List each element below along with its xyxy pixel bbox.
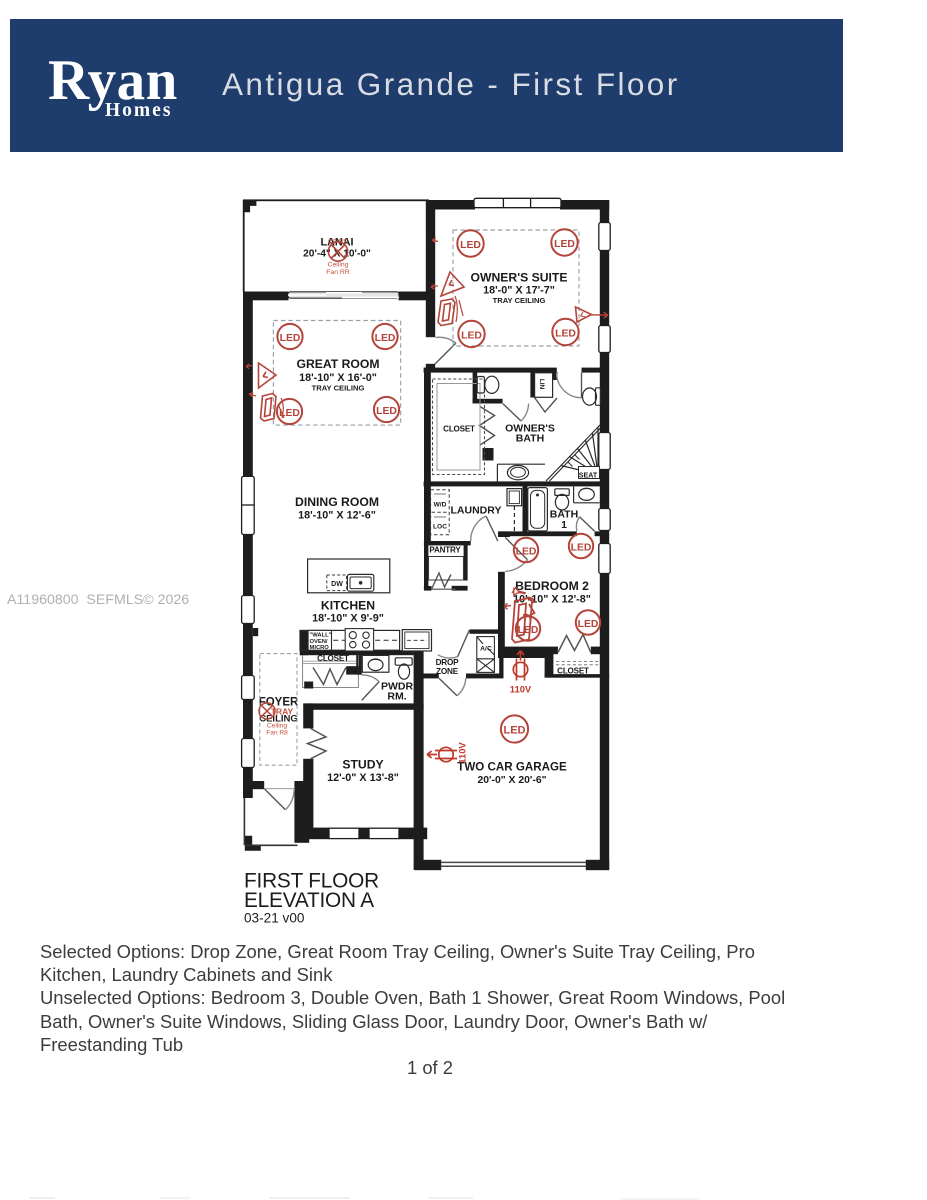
svg-text:RM.: RM.: [387, 691, 406, 703]
svg-text:LED: LED: [554, 239, 575, 250]
svg-text:"WALL": "WALL": [310, 633, 332, 639]
svg-text:DINING ROOM: DINING ROOM: [295, 495, 379, 509]
svg-text:18'-10" X 12'-6": 18'-10" X 12'-6": [298, 510, 376, 522]
svg-text:LOC: LOC: [433, 524, 447, 531]
svg-text:110V: 110V: [510, 684, 532, 695]
svg-text:LED: LED: [504, 725, 526, 737]
svg-text:TRAY CEILING: TRAY CEILING: [493, 296, 546, 305]
svg-text:Fan RR: Fan RR: [326, 269, 350, 276]
svg-text:1: 1: [561, 519, 567, 531]
svg-text:LED: LED: [461, 331, 482, 342]
svg-text:SEAT: SEAT: [579, 472, 598, 480]
svg-text:CLOSET: CLOSET: [443, 425, 475, 434]
svg-text:Ceiling: Ceiling: [328, 262, 349, 269]
svg-text:ZONE: ZONE: [436, 667, 459, 676]
svg-text:TWO CAR GARAGE: TWO CAR GARAGE: [457, 761, 567, 774]
svg-text:GREAT ROOM: GREAT ROOM: [296, 357, 379, 371]
svg-text:TRAY CEILING: TRAY CEILING: [312, 384, 365, 393]
svg-text:STUDY: STUDY: [342, 758, 383, 772]
svg-text:LED: LED: [375, 333, 396, 344]
svg-text:CLOSET: CLOSET: [317, 654, 349, 663]
svg-text:PANTRY: PANTRY: [429, 546, 461, 555]
svg-text:Ceiling: Ceiling: [267, 723, 287, 730]
svg-text:18'-10" X 9'-9": 18'-10" X 9'-9": [312, 613, 384, 625]
svg-text:A/C: A/C: [480, 646, 492, 653]
svg-text:LED: LED: [460, 240, 481, 251]
svg-text:CF RF: CF RF: [328, 239, 348, 246]
svg-text:LED: LED: [578, 619, 599, 630]
svg-text:LED: LED: [376, 406, 397, 417]
svg-text:MICRO: MICRO: [310, 645, 330, 651]
svg-text:18'-0" X 17'-7": 18'-0" X 17'-7": [483, 285, 555, 297]
svg-text:Fan R8: Fan R8: [266, 730, 288, 737]
svg-text:CLOSET: CLOSET: [557, 667, 589, 676]
svg-text:OVEN/: OVEN/: [310, 639, 328, 645]
svg-text:LED: LED: [516, 547, 537, 558]
svg-text:110V: 110V: [457, 742, 468, 764]
svg-text:OWNER'S SUITE: OWNER'S SUITE: [470, 271, 567, 285]
svg-text:LAUNDRY: LAUNDRY: [451, 505, 502, 517]
svg-text:TRAY: TRAY: [271, 707, 294, 717]
svg-text:03-21 v00: 03-21 v00: [244, 910, 305, 925]
svg-text:KITCHEN: KITCHEN: [321, 599, 375, 613]
svg-text:LED: LED: [280, 333, 301, 344]
svg-text:20'-0" X 20'-6": 20'-0" X 20'-6": [477, 775, 546, 786]
svg-text:DROP: DROP: [436, 658, 460, 667]
svg-text:12'-0" X 13'-8": 12'-0" X 13'-8": [327, 772, 399, 784]
svg-text:LED: LED: [571, 543, 592, 554]
svg-text:LED: LED: [555, 329, 576, 340]
svg-text:BATH: BATH: [516, 433, 544, 445]
svg-text:LIN: LIN: [538, 379, 545, 390]
svg-text:W/D: W/D: [434, 502, 447, 509]
svg-text:DW: DW: [331, 581, 343, 588]
svg-text:BEDROOM 2: BEDROOM 2: [515, 579, 589, 593]
svg-text:ELEVATION A: ELEVATION A: [244, 889, 374, 912]
svg-text:18'-10" X 16'-0": 18'-10" X 16'-0": [299, 372, 377, 384]
